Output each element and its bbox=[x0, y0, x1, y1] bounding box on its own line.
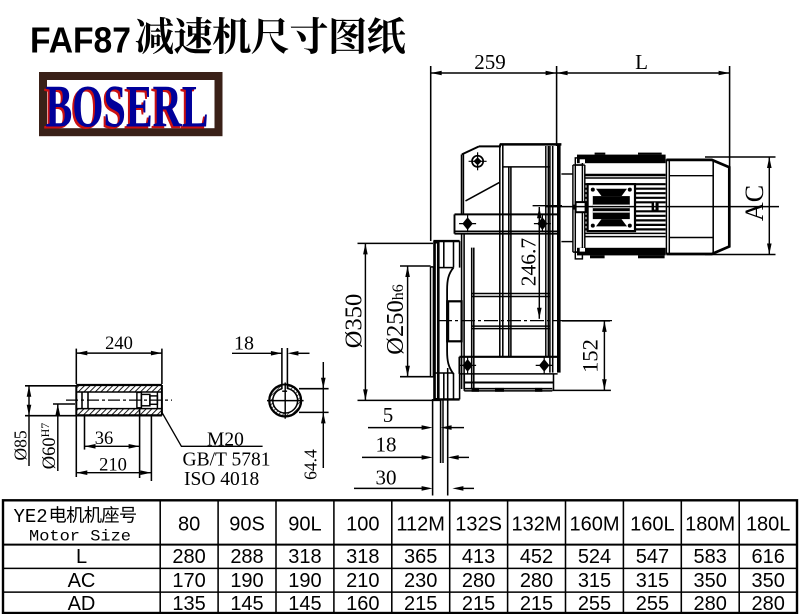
svg-text:255: 255 bbox=[636, 593, 669, 614]
svg-text:524: 524 bbox=[578, 546, 611, 568]
svg-text:180L: 180L bbox=[746, 514, 791, 536]
svg-text:AC: AC bbox=[68, 570, 96, 592]
svg-text:190: 190 bbox=[288, 570, 321, 592]
svg-text:90L: 90L bbox=[288, 514, 321, 536]
svg-text:132M: 132M bbox=[511, 514, 561, 536]
svg-text:112M: 112M bbox=[396, 514, 445, 536]
svg-text:280: 280 bbox=[520, 570, 553, 592]
svg-text:616: 616 bbox=[752, 546, 785, 568]
svg-text:160: 160 bbox=[346, 593, 379, 614]
svg-text:170: 170 bbox=[172, 570, 205, 592]
svg-text:215: 215 bbox=[520, 593, 553, 614]
svg-text:210: 210 bbox=[346, 570, 379, 592]
svg-text:318: 318 bbox=[288, 546, 321, 568]
svg-text:64.4: 64.4 bbox=[301, 449, 321, 480]
svg-text:547: 547 bbox=[636, 546, 669, 568]
svg-text:AD: AD bbox=[68, 593, 96, 614]
svg-text:160L: 160L bbox=[630, 514, 675, 536]
svg-text:135: 135 bbox=[172, 593, 205, 614]
svg-text:152: 152 bbox=[578, 339, 603, 373]
svg-text:230: 230 bbox=[404, 570, 437, 592]
svg-text:100: 100 bbox=[346, 514, 379, 536]
svg-text:5: 5 bbox=[383, 403, 394, 427]
svg-text:145: 145 bbox=[230, 593, 263, 614]
svg-text:YE2: YE2 bbox=[14, 506, 48, 528]
svg-text:160M: 160M bbox=[569, 514, 619, 536]
svg-text:18: 18 bbox=[234, 333, 254, 355]
svg-text:BOSERL: BOSERL bbox=[46, 74, 209, 140]
svg-text:Ø350: Ø350 bbox=[341, 294, 368, 348]
svg-text:AC: AC bbox=[740, 185, 769, 221]
svg-text:413: 413 bbox=[462, 546, 495, 568]
svg-text:L: L bbox=[76, 546, 87, 568]
svg-text:ISO 4018: ISO 4018 bbox=[184, 469, 259, 490]
svg-text:Motor Size: Motor Size bbox=[29, 528, 131, 546]
svg-text:90S: 90S bbox=[229, 514, 265, 536]
svg-text:315: 315 bbox=[636, 570, 669, 592]
svg-text:210: 210 bbox=[99, 456, 127, 476]
svg-text:318: 318 bbox=[346, 546, 379, 568]
svg-text:240: 240 bbox=[105, 334, 133, 354]
svg-text:132S: 132S bbox=[455, 514, 502, 536]
svg-text:246.7: 246.7 bbox=[516, 238, 540, 287]
svg-text:280: 280 bbox=[172, 546, 205, 568]
svg-text:350: 350 bbox=[752, 570, 785, 592]
svg-text:280: 280 bbox=[752, 593, 785, 614]
svg-text:280: 280 bbox=[694, 593, 727, 614]
svg-text:GB/T 5781: GB/T 5781 bbox=[183, 450, 271, 471]
svg-text:180M: 180M bbox=[685, 514, 735, 536]
svg-text:30: 30 bbox=[376, 466, 397, 490]
svg-text:259: 259 bbox=[474, 50, 506, 74]
svg-text:FAF87: FAF87 bbox=[30, 20, 131, 61]
svg-text:583: 583 bbox=[694, 546, 727, 568]
svg-text:Ø85: Ø85 bbox=[11, 430, 31, 460]
svg-text:280: 280 bbox=[462, 570, 495, 592]
svg-text:255: 255 bbox=[578, 593, 611, 614]
svg-text:190: 190 bbox=[230, 570, 263, 592]
svg-text:365: 365 bbox=[404, 546, 437, 568]
svg-text:315: 315 bbox=[578, 570, 611, 592]
svg-text:M20: M20 bbox=[207, 430, 244, 451]
svg-text:215: 215 bbox=[462, 593, 495, 614]
svg-text:288: 288 bbox=[230, 546, 263, 568]
svg-text:452: 452 bbox=[520, 546, 553, 568]
svg-text:350: 350 bbox=[694, 570, 727, 592]
svg-text:36: 36 bbox=[95, 429, 114, 449]
svg-text:L: L bbox=[635, 50, 648, 74]
svg-text:80: 80 bbox=[178, 514, 200, 536]
svg-text:145: 145 bbox=[288, 593, 321, 614]
svg-text:18: 18 bbox=[376, 433, 397, 457]
svg-text:215: 215 bbox=[404, 593, 437, 614]
